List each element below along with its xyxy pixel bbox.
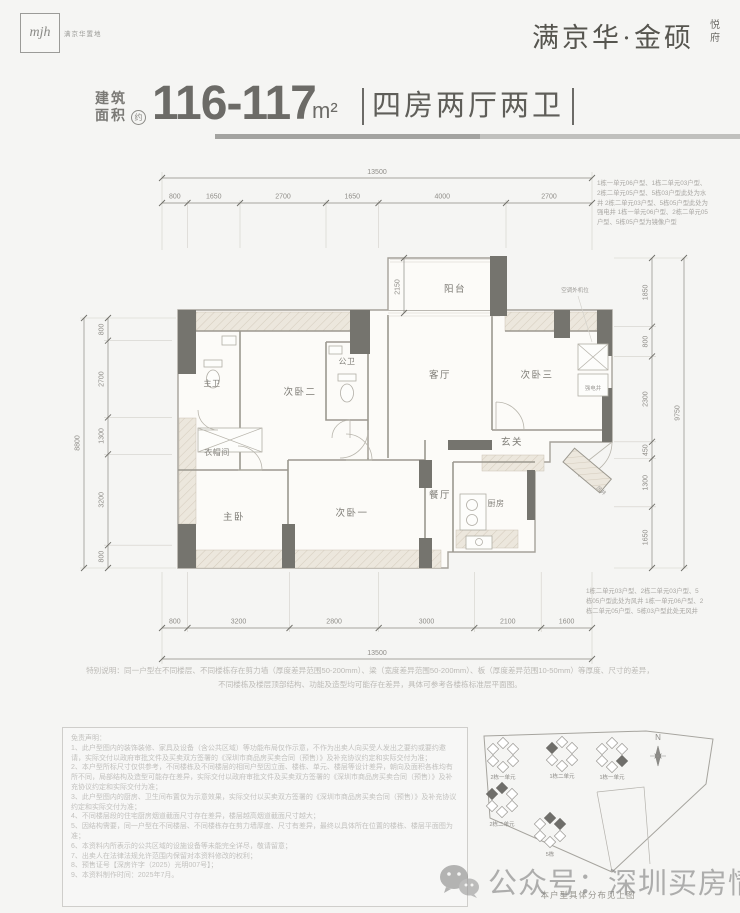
dim-label: 2100 [500,619,516,626]
special-note: 特别说明：同一户型在不同楼层、不同楼栋存在剪力墙（厚度差异范围50-200mm）… [40,664,700,693]
dim-label: 1650 [206,194,222,201]
cluster-label: 2栋一单元 [490,773,516,781]
disclaimer-item: 5、因结构需要，同一户型在不同楼层、不同楼栋存在剪力墙厚度、尺寸有差异，最终以具… [71,822,459,842]
layout-title: 四房两厅两卫 [362,88,574,125]
site-cluster-3: 1栋一单元 [596,737,627,781]
disclaimer-item: 7、出卖人在法律法规允许范围内保留对本资料修改的权利； [71,852,459,862]
wechat-icon [438,863,480,899]
disclaimer-box: 免责声明： 1、此户型图内的装饰装修、家具及设备（含公共区域）等功能布局仅作示意… [62,727,468,907]
dim-label: 1600 [559,619,575,626]
dim-label: 4000 [435,194,451,201]
cluster-label: 5栋 [546,850,555,858]
floor-plan: 空调外机位 强电井 风井 阳台 客厅 次卧二 次卧三 公卫 主卫 衣帽间 主卧 … [0,145,740,745]
dim-label: 1300 [99,428,106,444]
dim-label: 800 [643,336,650,348]
dim-label: 800 [99,323,106,335]
disclaimer-item: 6、本资料内所表示的公共区域的设施设备等未能完全详尽，敬请留意； [71,842,459,852]
disclaimer-item: 2、本户型所标尺寸仅供参考，不同楼栋及不同楼层的相同户型因立面、楼栋、单元、楼层… [71,763,459,792]
flyer-page: { "colors":{"wall":"#75746e","hatch":"#e… [0,0,740,913]
developer-logo: mjh [20,13,60,53]
site-cluster-4: 2栋二单元 [486,782,517,828]
north-label: N [655,733,661,742]
dim-label: 2700 [541,194,557,201]
dims-top: 13500 800 1650 2700 1650 4000 2700 [159,169,595,250]
disclaimer-item: 8、预售证号【深房许字（2025）光明007号】； [71,861,459,871]
north-compass: N [650,733,666,766]
area-label: 建筑 面积 [95,90,127,124]
dim-label: 13500 [367,169,387,176]
ac-unit-label: 空调外机位 [561,286,589,294]
dim-label: 3000 [419,619,435,626]
dim-label: 450 [643,444,650,456]
dim-label: 2700 [275,194,291,201]
dim-label: 2700 [99,371,106,387]
room-label-living: 客厅 [429,369,451,381]
approx-badge: 约 [131,110,146,125]
room-label-foyer: 玄关 [501,436,523,448]
logo-caption: 满京华置地 [64,28,102,38]
dim-label: 800 [169,619,181,626]
disclaimer-item: 3、此户型图内的厨房、卫生间布置仅为示意效果，实际交付以买卖双方签署的《深圳市商… [71,793,459,813]
elec-shaft-label: 强电井 [585,384,602,392]
dims-left: 800 2700 1300 3200 800 8800 [75,315,177,571]
project-brand-sub: 悦 府 [708,20,722,45]
site-cluster-2: 1栋二单元 [546,736,577,780]
dim-label: 2150 [395,279,402,295]
cluster-label: 1栋二单元 [549,772,575,780]
dim-label: 1650 [643,530,650,546]
divider-bar-right [480,134,740,139]
plan-note-top-right: 1栋一单元06户型、1栋二单元03户型、2栋二单元05户型、5栋03户型此处为水… [597,179,709,228]
logo-monogram: mjh [30,25,51,41]
watermark: 公众号：深圳买房情报 [438,860,740,902]
dim-label: 9750 [675,405,682,421]
dims-right: 1850 800 2300 450 1300 1650 9750 [614,255,688,571]
room-label-bedroom1: 次卧一 [335,507,368,519]
disclaimer-title: 免责声明： [71,734,459,744]
dim-label: 2300 [643,391,650,407]
dim-label: 3200 [99,492,106,508]
watermark-text: 公众号：深圳买房情报 [488,860,740,902]
dim-label: 800 [99,551,106,563]
room-label-public-bath: 公卫 [339,357,356,366]
dim-label: 800 [169,194,181,201]
room-label-bedroom3: 次卧三 [520,369,553,381]
room-label-bedroom2: 次卧二 [283,386,316,398]
dims-bottom: 800 3200 2800 3000 2100 1600 13500 [159,572,595,664]
dim-label: 8800 [75,435,82,451]
room-label-cloakroom: 衣帽间 [204,447,230,457]
dim-label: 13500 [367,650,387,657]
disclaimer-item: 9、本资料制作时间：2025年7月。 [71,871,459,881]
disclaimer-item: 4、不同楼层段的住宅厨房烟道截面尺寸存在差异，楼层越高烟道截面尺寸越大； [71,812,459,822]
area-value: 116-117 [152,76,316,131]
dim-label: 1850 [643,285,650,301]
room-label-dining: 餐厅 [429,489,451,501]
room-label-kitchen: 厨房 [488,498,505,508]
dim-label: 2800 [326,619,342,626]
disclaimer-item: 1、此户型图内的装饰装修、家具及设备（含公共区域）等功能布局仅作示意，不作为出卖… [71,744,459,764]
site-cluster-5: 5栋 [534,812,565,858]
site-cluster-1: 2栋一单元 [487,737,518,781]
dim-label: 3200 [231,619,247,626]
room-label-master-bath: 主卫 [204,378,221,388]
divider-bar-left [215,134,480,139]
room-label-master: 主卧 [223,511,245,523]
dim-label: 1300 [643,475,650,491]
cluster-label: 1栋一单元 [599,773,625,781]
room-label-balcony: 阳台 [444,283,466,295]
dim-label: 1650 [345,194,361,201]
cluster-label: 2栋二单元 [489,820,515,828]
area-unit: m² [312,98,338,124]
project-brand: 满京华·金硕 [532,16,694,55]
plan-note-bottom-right: 1栋二单元03户型、2栋二单元03户型、5栋05户型此处为风井 1栋一单元06户… [586,587,704,616]
